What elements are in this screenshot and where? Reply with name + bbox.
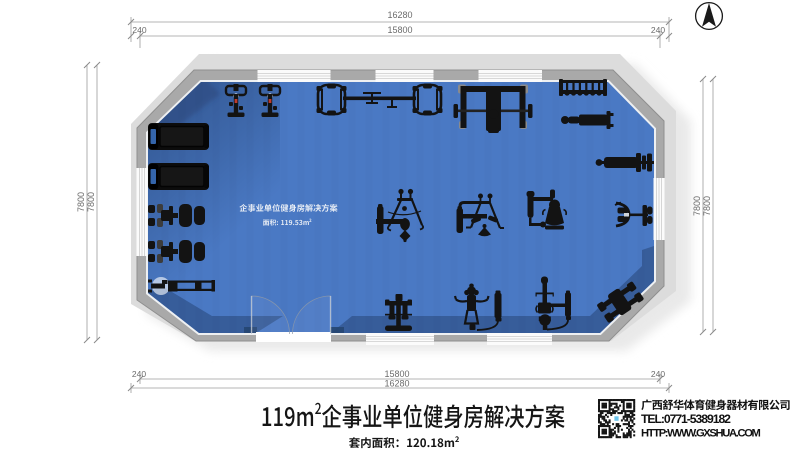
svg-text:7800: 7800 [76,192,86,212]
svg-text:240: 240 [651,25,665,35]
svg-text:7800: 7800 [692,196,702,216]
svg-text:16280: 16280 [384,379,409,389]
svg-text:16280: 16280 [387,10,412,20]
svg-text:15800: 15800 [384,369,409,379]
svg-text:15800: 15800 [387,25,412,35]
svg-text:240: 240 [651,369,665,379]
svg-text:240: 240 [132,369,146,379]
svg-text:TEL:0771-5389182: TEL:0771-5389182 [641,412,731,426]
svg-text:HTTP:WWW.GXSHUA.COM: HTTP:WWW.GXSHUA.COM [641,428,761,440]
svg-text:240: 240 [132,25,146,35]
svg-text:7800: 7800 [86,192,96,212]
svg-text:7800: 7800 [702,196,712,216]
